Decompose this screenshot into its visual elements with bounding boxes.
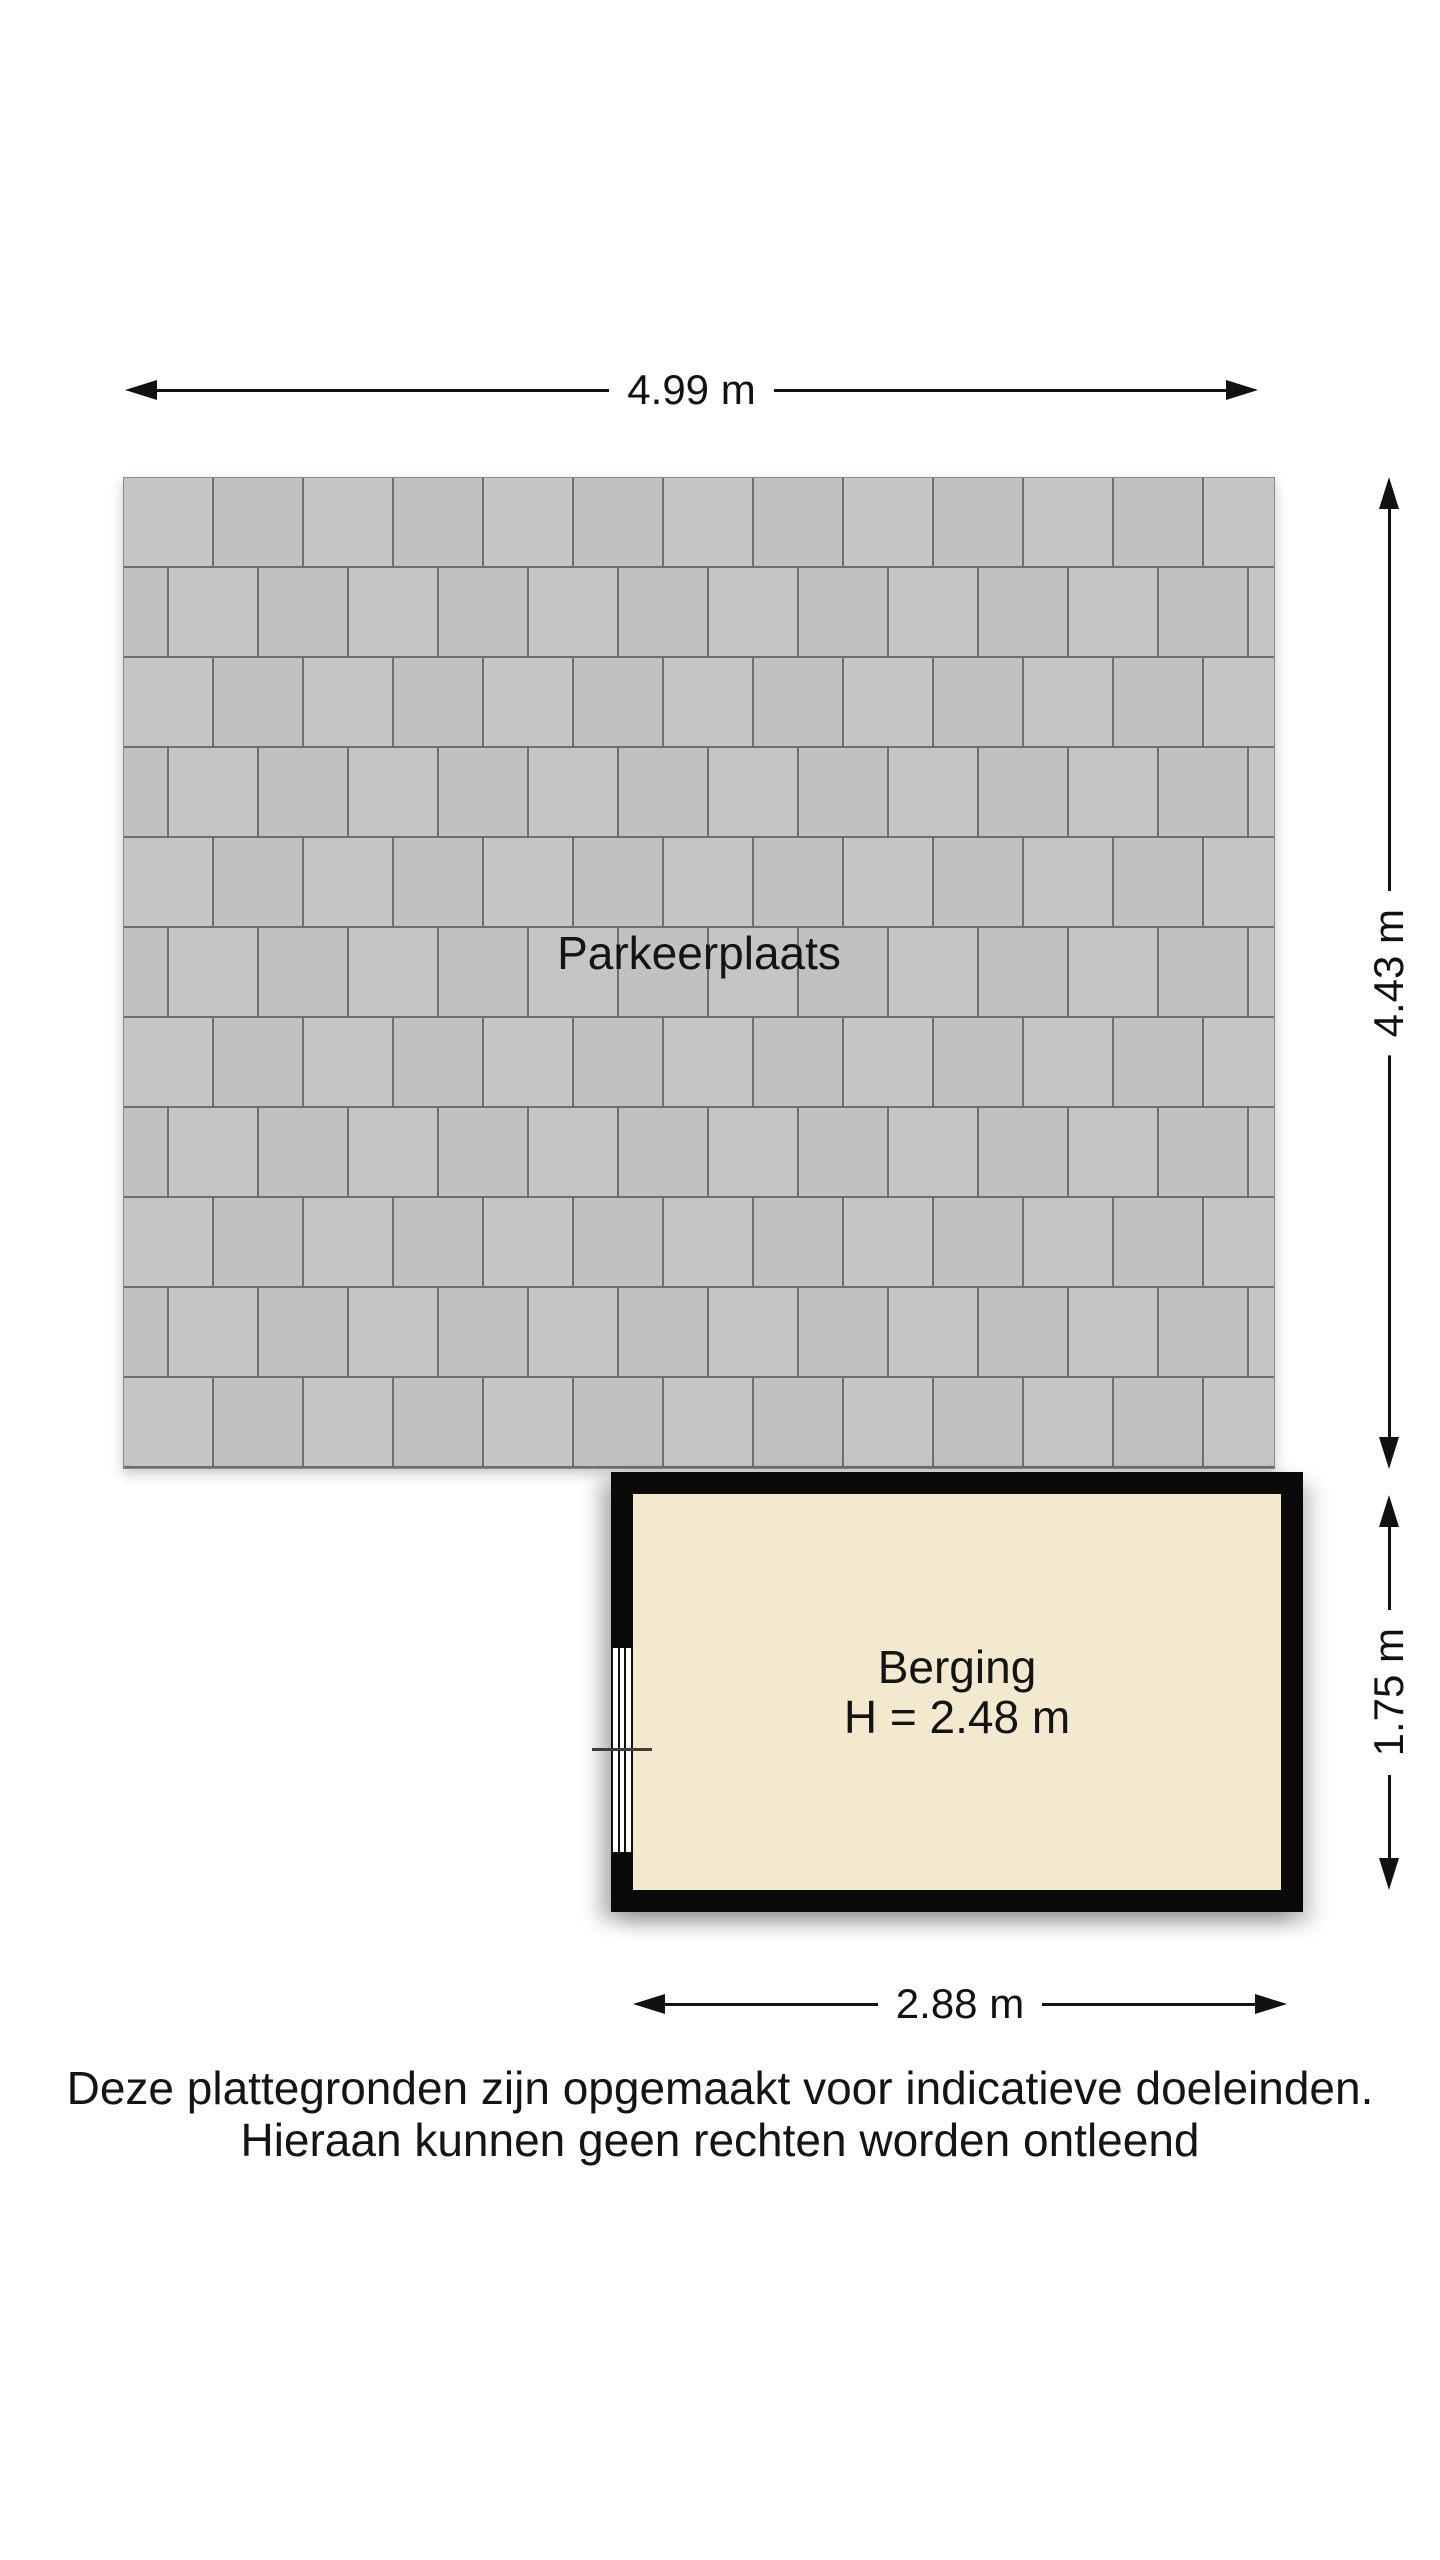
dimension-right-lower-height: 1.75 m — [1367, 1495, 1411, 1890]
storage-room: Berging H = 2.48 m — [611, 1472, 1303, 1912]
disclaimer-line-2: Hieraan kunnen geen rechten worden ontle… — [0, 2114, 1440, 2166]
dimension-line — [665, 2003, 878, 2006]
dimension-right-lower-label: 1.75 m — [1365, 1610, 1413, 1774]
arrow-left-icon — [633, 1994, 665, 2014]
dimension-right-upper-label: 4.43 m — [1365, 891, 1413, 1055]
dimension-top-width-label: 4.99 m — [609, 368, 773, 412]
dimension-line — [1388, 1527, 1391, 1610]
dimension-right-upper-height: 4.43 m — [1367, 477, 1411, 1469]
floorplan-canvas: 4.99 m Parkeerplaats 4.43 m — [0, 0, 1440, 2560]
arrow-up-icon — [1379, 1495, 1399, 1527]
dimension-line — [1388, 509, 1391, 891]
dimension-line — [1042, 2003, 1255, 2006]
arrow-up-icon — [1379, 477, 1399, 509]
storage-label: Berging — [844, 1642, 1070, 1692]
arrow-right-icon — [1255, 1994, 1287, 2014]
disclaimer-line-1: Deze plattegronden zijn opgemaakt voor i… — [0, 2062, 1440, 2114]
arrow-down-icon — [1379, 1858, 1399, 1890]
dimension-line — [774, 389, 1226, 392]
dimension-line — [157, 389, 609, 392]
dimension-bottom-width: 2.88 m — [633, 1982, 1287, 2026]
storage-height-label: H = 2.48 m — [844, 1692, 1070, 1742]
disclaimer: Deze plattegronden zijn opgemaakt voor i… — [0, 2062, 1440, 2166]
dimension-line — [1388, 1775, 1391, 1858]
dimension-bottom-width-label: 2.88 m — [878, 1982, 1042, 2026]
dimension-line — [1388, 1055, 1391, 1437]
arrow-left-icon — [125, 380, 157, 400]
arrow-down-icon — [1379, 1437, 1399, 1469]
arrow-right-icon — [1226, 380, 1258, 400]
window-sill-mark — [592, 1748, 652, 1751]
storage-label-block: Berging H = 2.48 m — [844, 1642, 1070, 1742]
parking-area: Parkeerplaats — [123, 477, 1275, 1469]
storage-room-floor: Berging H = 2.48 m — [633, 1494, 1281, 1890]
dimension-top-width: 4.99 m — [125, 368, 1258, 412]
parking-label: Parkeerplaats — [557, 926, 841, 980]
